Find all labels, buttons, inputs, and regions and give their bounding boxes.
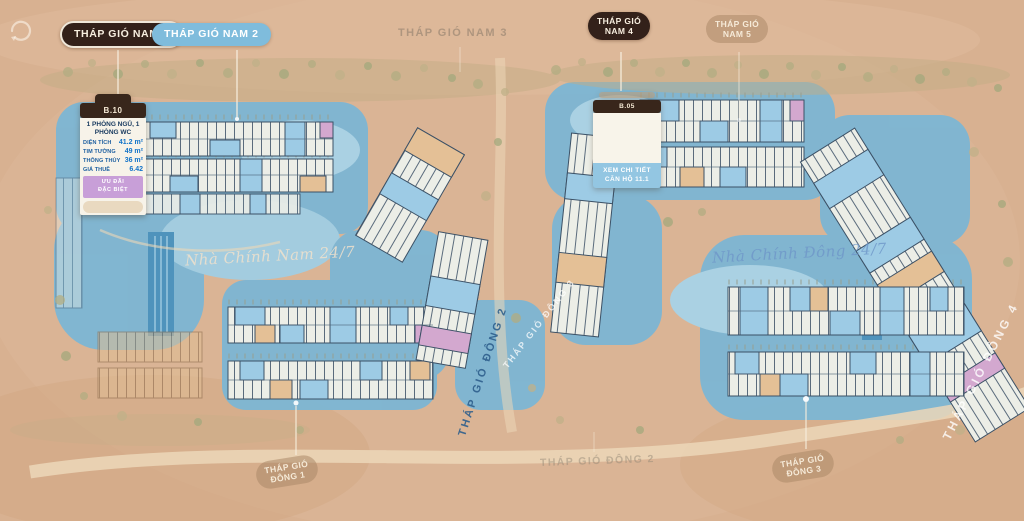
unit-row-value: 36 m² — [125, 157, 143, 164]
unit-row-label: DIỆN TÍCH — [83, 140, 111, 146]
unit-row-tim-tuong: TIM TƯỜNG 49 m² — [83, 148, 143, 155]
unit-row-label: TIM TƯỜNG — [83, 149, 116, 155]
unit-row-label: GIÁ THUÊ — [83, 167, 110, 173]
tower-label-nam-3[interactable]: THÁP GIÓ NAM 3 — [398, 27, 508, 39]
view-detail-line2: CĂN HỘ 11.1 — [595, 175, 659, 184]
unit-row-gia: GIÁ THUÊ 6.42 — [83, 166, 143, 173]
unit-row-value: 49 m² — [125, 148, 143, 155]
unit-tooltip-body: 1 PHÒNG NGỦ, 1 PHÒNG WC DIỆN TÍCH 41.2 m… — [80, 118, 146, 215]
tower-label-nam-4-line1: THÁP GIÓ — [597, 16, 641, 26]
promo-line2: ĐẶC BIỆT — [85, 187, 141, 195]
view-detail-line1: XEM CHI TIẾT — [595, 166, 659, 175]
detail-card-code: B.05 — [593, 100, 661, 113]
unit-type-line2: PHÒNG WC — [83, 129, 143, 137]
unit-row-dien-tich: DIỆN TÍCH 41.2 m² — [83, 139, 143, 146]
promo-banner[interactable]: ƯU ĐÃI ĐẶC BIỆT — [83, 176, 143, 197]
detail-card-preview — [593, 113, 661, 163]
tower-label-nam-5-line1: THÁP GIÓ — [715, 19, 759, 29]
unit-row-value: 6.42 — [129, 166, 143, 173]
unit-row-value: 41.2 m² — [119, 139, 143, 146]
site-map[interactable] — [0, 0, 1024, 521]
detail-card: B.05 XEM CHI TIẾT CĂN HỘ 11.1 — [593, 92, 661, 188]
detail-card-strip — [599, 92, 655, 98]
unit-row-thong-thuy: THÔNG THỦY 36 m² — [83, 157, 143, 164]
unit-type-line1: 1 PHÒNG NGỦ, 1 — [83, 121, 143, 129]
rotate-map-icon[interactable] — [5, 15, 37, 47]
unit-tooltip-footer — [83, 201, 143, 213]
view-detail-button[interactable]: XEM CHI TIẾT CĂN HỘ 11.1 — [593, 163, 661, 188]
site-plan-viewer: THÁP GIÓ NAM 1 THÁP GIÓ NAM 2 THÁP GIÓ N… — [0, 0, 1024, 521]
tower-label-nam-5-line2: NAM 5 — [715, 29, 759, 39]
tower-label-nam-5[interactable]: THÁP GIÓ NAM 5 — [706, 15, 768, 43]
promo-line1: ƯU ĐÃI — [85, 179, 141, 187]
unit-tooltip: B.10 1 PHÒNG NGỦ, 1 PHÒNG WC DIỆN TÍCH 4… — [80, 94, 146, 215]
unit-tooltip-tab[interactable] — [95, 94, 131, 103]
tower-label-nam-4[interactable]: THÁP GIÓ NAM 4 — [588, 12, 650, 40]
unit-row-label: THÔNG THỦY — [83, 158, 120, 164]
unit-code: B.10 — [80, 103, 146, 118]
tower-label-nam-2[interactable]: THÁP GIÓ NAM 2 — [152, 23, 271, 46]
tower-label-nam-4-line2: NAM 4 — [597, 26, 641, 36]
